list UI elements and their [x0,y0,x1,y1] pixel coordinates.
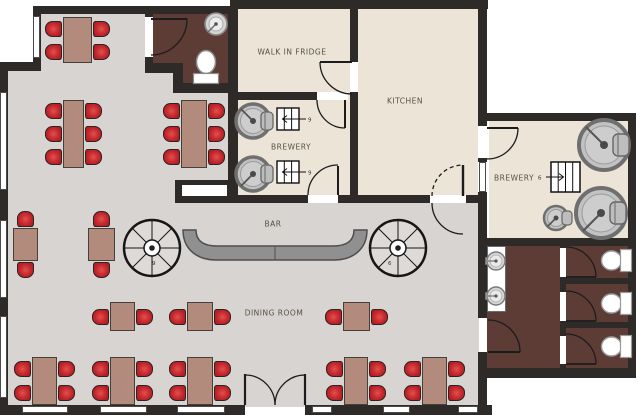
chair [14,385,31,401]
chair [17,211,34,227]
chair [45,149,62,165]
dining-table [110,302,135,331]
dining-table [13,228,38,261]
chair [214,361,231,377]
dining-table [187,302,213,331]
dining-table [343,302,370,331]
dining-table [110,357,135,405]
chair [58,385,75,401]
dining-table [32,357,57,405]
chair [14,361,31,377]
chair [208,103,225,119]
chair [136,309,153,325]
dining-table [63,100,84,168]
chair [45,103,62,119]
dining-table [422,357,447,405]
chair [214,309,231,325]
chair [85,149,102,165]
chair [326,385,343,401]
chair [93,211,110,227]
chair [163,103,180,119]
chair [85,103,102,119]
chair [208,149,225,165]
floor-plan: 9 6 [0,0,640,420]
chair [92,385,109,401]
chair [93,262,110,278]
dining-table [63,17,92,63]
chair [448,361,465,377]
chair [92,309,109,325]
chair [369,385,386,401]
room-label-dining-room: DINING ROOM [245,309,304,318]
chair [169,385,186,401]
dining-table [187,357,213,405]
chair [448,385,465,401]
chair [17,262,34,278]
chair [45,21,62,37]
chair [85,126,102,142]
chair [404,361,421,377]
chair [163,126,180,142]
dining-table [181,100,207,168]
furniture-layer [0,0,640,420]
chair [45,44,62,60]
chair [58,361,75,377]
dining-table [344,357,368,405]
chair [214,385,231,401]
dining-table [88,228,115,261]
chair [163,149,180,165]
chair [208,126,225,142]
chair [45,126,62,142]
room-label-brewery-middle: BREWERY [271,143,311,152]
chair [404,385,421,401]
chair [325,309,342,325]
chair [326,361,343,377]
room-label-brewery-right: BREWERY [494,174,534,183]
chair [169,309,186,325]
chair [93,21,110,37]
chair [369,361,386,377]
chair [371,309,388,325]
room-label-walk-in-fridge: WALK IN FRIDGE [258,48,327,57]
room-label-kitchen: KITCHEN [387,97,423,106]
chair [169,361,186,377]
chair [93,44,110,60]
room-label-bar: BAR [265,220,282,229]
chair [92,361,109,377]
chair [136,361,153,377]
chair [136,385,153,401]
